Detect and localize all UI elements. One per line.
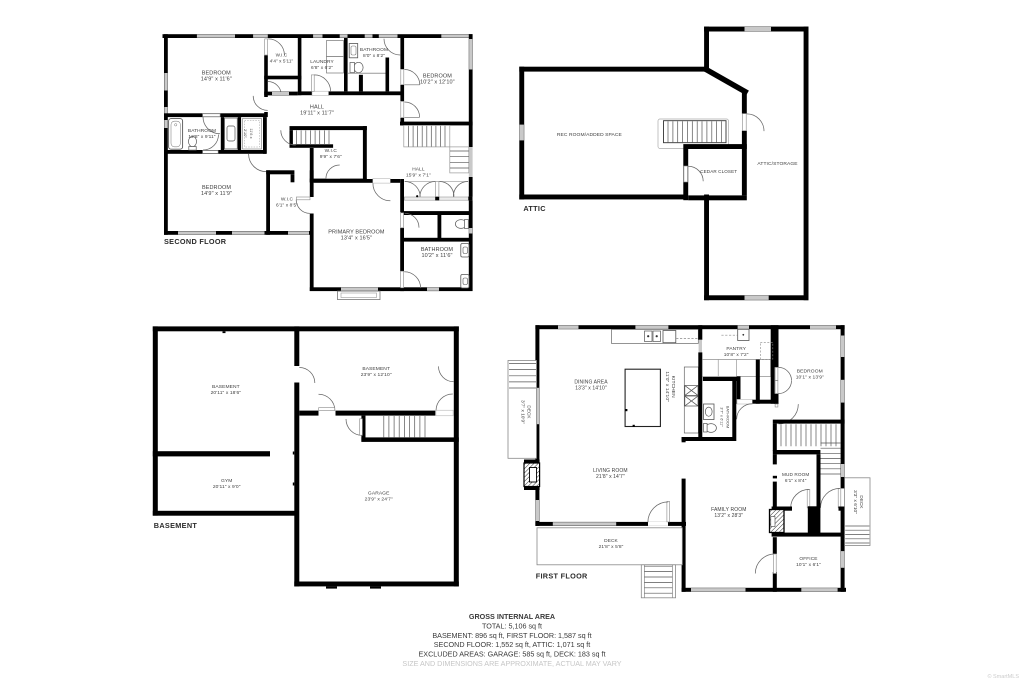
svg-text:SECOND FLOOR: SECOND FLOOR	[164, 237, 227, 246]
svg-text:ATTIC: ATTIC	[523, 204, 546, 213]
svg-text:HALL: HALL	[412, 167, 425, 173]
svg-text:10'1" x 6'1": 10'1" x 6'1"	[796, 562, 821, 568]
svg-text:21'8" x 5'8": 21'8" x 5'8"	[599, 544, 624, 550]
svg-text:10'1" x 13'9": 10'1" x 13'9"	[796, 375, 824, 381]
svg-text:GARAGE: GARAGE	[368, 490, 390, 496]
svg-text:3'7" x 10'9": 3'7" x 10'9"	[521, 400, 526, 424]
svg-text:13'2" x 28'3": 13'2" x 28'3"	[714, 513, 743, 519]
svg-text:3'3" x 6'10": 3'3" x 6'10"	[853, 490, 858, 514]
svg-text:11'0" x 14'10": 11'0" x 14'10"	[664, 371, 670, 402]
svg-text:KITCHEN: KITCHEN	[670, 376, 676, 399]
svg-text:3'7" x 6'11": 3'7" x 6'11"	[720, 407, 724, 427]
svg-text:EXCLUDED AREAS: GARAGE: 585 sq: EXCLUDED AREAS: GARAGE: 585 sq ft, DECK:…	[419, 650, 606, 659]
svg-text:GROSS INTERNAL AREA: GROSS INTERNAL AREA	[469, 612, 555, 621]
svg-text:PANTRY: PANTRY	[726, 346, 746, 352]
svg-text:DECK: DECK	[859, 495, 864, 509]
svg-text:9'9" x 7'6": 9'9" x 7'6"	[320, 154, 342, 160]
svg-text:MUD ROOM: MUD ROOM	[782, 472, 809, 477]
svg-text:20'11" x 18'6": 20'11" x 18'6"	[211, 390, 242, 396]
svg-text:4'4" x 5'11": 4'4" x 5'11"	[270, 59, 294, 64]
svg-text:6'1" x 8'4": 6'1" x 8'4"	[785, 478, 807, 483]
svg-text:W.I.C: W.I.C	[325, 148, 338, 154]
svg-text:10'2" x 11'6": 10'2" x 11'6"	[421, 253, 452, 259]
svg-text:GYM: GYM	[221, 478, 232, 484]
svg-text:BATHROOM: BATHROOM	[188, 128, 216, 134]
svg-text:2'10": 2'10"	[243, 129, 247, 138]
svg-text:SIZE AND DIMENSIONS ARE APPROX: SIZE AND DIMENSIONS ARE APPROXIMATE, ACT…	[402, 659, 621, 668]
svg-text:10'8" x 7'2": 10'8" x 7'2"	[724, 352, 749, 358]
svg-text:14'9" x 11'9": 14'9" x 11'9"	[201, 191, 232, 197]
svg-text:11'6 x: 11'6 x	[249, 128, 253, 138]
svg-text:W.I.C: W.I.C	[281, 197, 294, 203]
svg-text:DECK: DECK	[527, 405, 532, 419]
svg-text:21'8" x 14'7": 21'8" x 14'7"	[596, 474, 625, 480]
svg-text:6'1" x 8'5": 6'1" x 8'5"	[276, 203, 298, 209]
svg-text:20'11" x 9'0": 20'11" x 9'0"	[213, 484, 241, 490]
svg-text:19'11" x 11'7": 19'11" x 11'7"	[300, 111, 334, 117]
svg-text:ATTIC/STORAGE: ATTIC/STORAGE	[757, 161, 798, 167]
svg-text:W.I.C: W.I.C	[276, 53, 288, 58]
svg-text:8'0" x 8'2": 8'0" x 8'2"	[363, 53, 385, 59]
svg-text:BATHROOM: BATHROOM	[360, 47, 388, 53]
svg-text:REC ROOM/ADDED SPACE: REC ROOM/ADDED SPACE	[557, 132, 623, 138]
svg-text:12'8" x 9'11": 12'8" x 9'11"	[188, 134, 215, 140]
svg-text:10'2" x 12'10": 10'2" x 12'10"	[420, 80, 455, 86]
svg-text:15'9" x 7'1": 15'9" x 7'1"	[406, 173, 431, 179]
svg-text:BATHROOM: BATHROOM	[726, 406, 730, 428]
svg-text:BASEMENT: BASEMENT	[362, 366, 390, 372]
svg-text:13'4" x 16'5": 13'4" x 16'5"	[341, 236, 372, 242]
svg-text:DECK: DECK	[604, 538, 618, 544]
svg-text:BEDROOM: BEDROOM	[797, 369, 823, 375]
svg-text:LAUNDRY: LAUNDRY	[310, 59, 334, 65]
svg-text:TOTAL: 5,106 sq ft: TOTAL: 5,106 sq ft	[482, 621, 542, 630]
svg-text:6'8" x 6'2": 6'8" x 6'2"	[311, 65, 333, 71]
svg-text:23'9" x 24'7": 23'9" x 24'7"	[365, 496, 393, 502]
svg-text:13'3" x 14'10": 13'3" x 14'10"	[575, 386, 607, 392]
svg-text:SECOND FLOOR: 1,552 sq ft, ATT: SECOND FLOOR: 1,552 sq ft, ATTIC: 1,071 …	[434, 640, 590, 649]
svg-text:14'9" x 11'6": 14'9" x 11'6"	[201, 77, 232, 83]
svg-text:© SmartMLS: © SmartMLS	[987, 673, 1019, 680]
svg-text:FIRST FLOOR: FIRST FLOOR	[536, 572, 588, 581]
svg-text:CEDAR CLOSET: CEDAR CLOSET	[700, 169, 737, 174]
svg-text:BASEMENT: 896 sq ft, FIRST FLO: BASEMENT: 896 sq ft, FIRST FLOOR: 1,587 …	[432, 631, 591, 640]
svg-text:BASEMENT: BASEMENT	[154, 521, 198, 530]
svg-text:BASEMENT: BASEMENT	[212, 384, 240, 390]
svg-text:23'9" x 12'10": 23'9" x 12'10"	[361, 372, 392, 378]
svg-text:OFFICE: OFFICE	[799, 556, 817, 562]
